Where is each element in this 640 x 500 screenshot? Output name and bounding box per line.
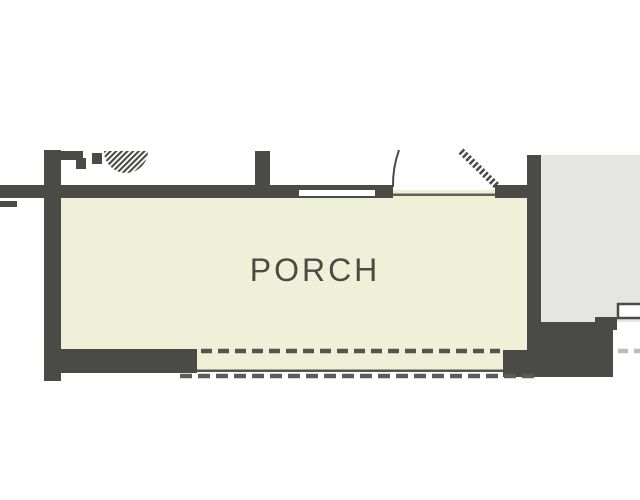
window-right-icon (618, 304, 640, 318)
left-wall (44, 150, 61, 381)
door-swing-arc-icon (393, 150, 399, 187)
steps-edge-line (197, 370, 527, 373)
floor-plan-svg (0, 0, 640, 500)
foundation-notch (503, 350, 527, 377)
left-edge-wall-stub (0, 201, 17, 207)
porch-room-label: PORCH (197, 252, 433, 289)
window-top-icon (298, 189, 376, 197)
adjacent-room-floor (541, 155, 640, 322)
mid-wall-stub (255, 151, 270, 191)
door-leaf-icon (461, 151, 497, 186)
foundation-block (541, 322, 613, 377)
jamb-detail-foot (76, 158, 86, 169)
jamb-detail-block (92, 153, 102, 164)
bottom-wall (44, 349, 197, 373)
wall-lip-right (595, 317, 617, 330)
door-threshold (393, 194, 495, 197)
ceiling-fan-icon (104, 151, 148, 173)
floor-plan: PORCH (0, 0, 640, 500)
right-wall (527, 155, 541, 377)
